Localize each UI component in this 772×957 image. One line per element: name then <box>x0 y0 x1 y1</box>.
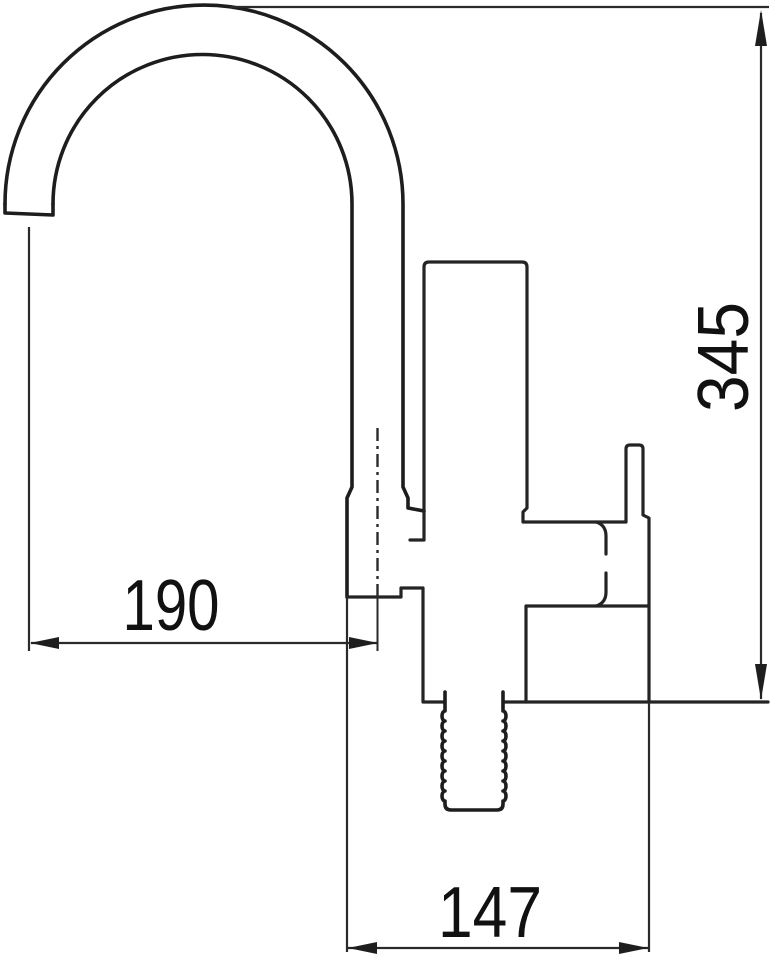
arrowhead-right-icon <box>619 942 648 954</box>
spout-tip <box>5 204 53 215</box>
drawing-svg: 190 345 147 <box>0 0 772 957</box>
dimension-label-190: 190 <box>123 566 220 646</box>
arrowhead-up-icon <box>755 10 767 46</box>
dimension-spout-reach: 190 <box>29 227 378 651</box>
threaded-shank <box>442 692 506 810</box>
arrowhead-left-icon <box>30 637 59 649</box>
valve-stem <box>596 522 606 606</box>
spout-outer-arc <box>5 5 424 511</box>
arrowhead-left-icon <box>348 942 377 954</box>
faucet-outline <box>5 5 768 810</box>
cartridge-and-handle <box>410 262 649 702</box>
dimension-label-345: 345 <box>684 302 764 412</box>
arrowhead-right-icon <box>349 637 378 649</box>
faucet-technical-drawing: 190 345 147 <box>0 0 772 957</box>
handle-bottom-and-body-right <box>526 606 649 702</box>
dimension-label-147: 147 <box>438 873 542 953</box>
arrowhead-down-icon <box>755 664 767 700</box>
dimension-overall-height: 345 <box>230 7 769 700</box>
dimension-base-width: 147 <box>347 597 649 954</box>
spout-inner-arc <box>53 54 352 597</box>
